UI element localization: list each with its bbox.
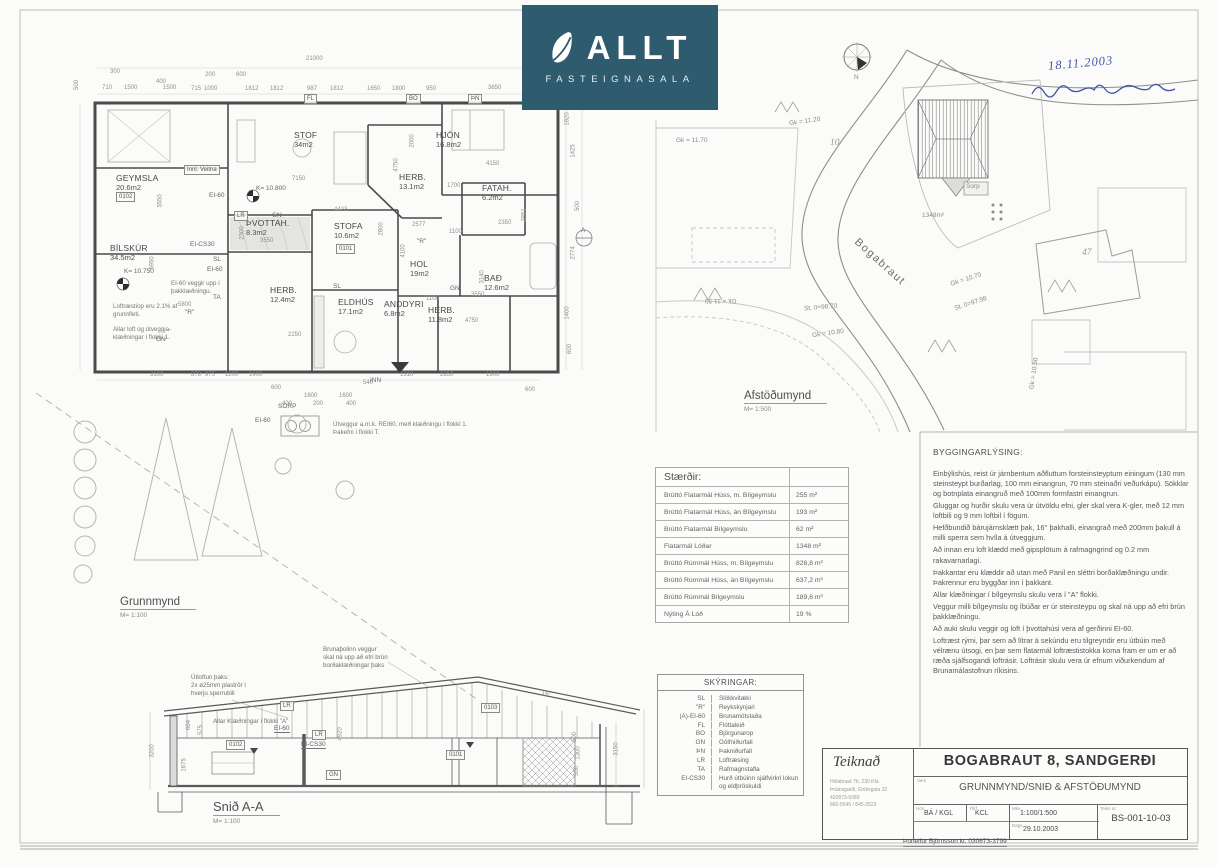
section-cut-marker-icon bbox=[576, 230, 592, 246]
code-label: SL bbox=[213, 256, 221, 263]
legend-meaning: Gólfniðurfall bbox=[712, 739, 803, 747]
section-dimensions: 3200664575167549205001300500315016° bbox=[0, 0, 1218, 867]
dimension-label: 1500 bbox=[163, 85, 176, 91]
code-label: EI-CS30 bbox=[190, 241, 215, 248]
room-label: BÍLSKÚR 34.5m2 bbox=[110, 244, 148, 262]
code-label: INN bbox=[370, 377, 381, 384]
room-label: BAÐ 12.6m2 bbox=[484, 274, 509, 292]
size-table-row: Flatarmál Lóðar 1348 m² bbox=[656, 537, 848, 554]
site-label: N bbox=[854, 74, 859, 81]
house-roof bbox=[918, 100, 988, 178]
boxed-code-label: LR bbox=[234, 211, 248, 221]
description-title: BYGGINGARLÝSING: bbox=[933, 447, 1190, 457]
size-table: Stærðir: Brúttó Flatarmál Húss, m. Bílge… bbox=[655, 467, 849, 623]
boxed-code-label: ÞN bbox=[468, 94, 482, 104]
legend-code: LR bbox=[658, 757, 712, 765]
dimension-label: 1812 bbox=[270, 86, 283, 92]
room-label: HOL 19m2 bbox=[410, 260, 429, 278]
compass-icon bbox=[842, 42, 872, 72]
dimension-label: 2800 bbox=[379, 222, 385, 235]
dimension-label: 5950 bbox=[150, 256, 156, 269]
dimension-label: 3150 bbox=[614, 742, 620, 755]
dimension-label: 600 bbox=[236, 72, 246, 78]
legend-meaning: Loftræsing bbox=[712, 757, 803, 765]
dimension-label: 5800 bbox=[178, 302, 191, 308]
dimension-label: 987 bbox=[307, 86, 317, 92]
plot-number: 10 bbox=[830, 138, 840, 148]
site-label: Gk = 11.20 bbox=[789, 116, 821, 127]
dimension-label: 950 bbox=[426, 86, 436, 92]
size-table-row: Brúttó Rúmmál Húss, án Bílgeymslu 637,2 … bbox=[656, 571, 848, 588]
sheet-title: GRUNNMYND/SNIÐ & AFSTÖÐUMYND bbox=[913, 782, 1187, 793]
leaf-icon bbox=[548, 30, 578, 66]
dimension-label: 3550 bbox=[471, 292, 484, 298]
dimension-label: 2350 bbox=[498, 220, 511, 226]
code-label: GN bbox=[156, 336, 166, 343]
dimension-label: 4750 bbox=[394, 158, 400, 171]
legend-code: EI-CS30 bbox=[658, 775, 712, 791]
address-line: 420873-5089 bbox=[830, 795, 887, 803]
room-label: GEYMSLA 20.6m2 bbox=[116, 174, 159, 192]
code-label: EI-60 bbox=[209, 192, 225, 199]
dimension-label: 400 bbox=[346, 401, 356, 407]
size-table-row: Brúttó Rúmmál Bílgeymslu 189,6 m³ bbox=[656, 588, 848, 605]
legend-code: (A)-EI-60 bbox=[658, 713, 712, 721]
site-plan-labels: Gk = 11.70Gk = 11.20Gk = 11.30St. 0=98.7… bbox=[0, 0, 1218, 867]
boxed-code-label: LR bbox=[280, 701, 294, 711]
dimension-label: 715 bbox=[191, 86, 201, 92]
description-paragraph: Þakkantar eru klæddir að utan með Panil … bbox=[933, 568, 1190, 588]
size-table-row: Nýting Á Lóð 19 % bbox=[656, 605, 848, 622]
scales: 1:100/1:500 bbox=[1020, 810, 1057, 817]
address-line: Þráinsgarði, Eiríksgata 32 bbox=[830, 787, 887, 795]
description-paragraph: Einbýlishús, reist úr járnbentum aðflutt… bbox=[933, 469, 1190, 499]
dimension-label: 500 bbox=[74, 80, 80, 90]
size-table-row: Brúttó Flatarmál Bílgeymslu 62 m² bbox=[656, 520, 848, 537]
legend-code: "R" bbox=[658, 704, 712, 712]
floor-plan-chips: Innl. VeitnaLR01020101FLBOÞN bbox=[0, 0, 1218, 867]
dimension-label: 1600 bbox=[304, 393, 317, 399]
dimension-label: 200 bbox=[313, 401, 323, 407]
room-label: STOF 34m2 bbox=[294, 131, 317, 149]
dimension-label: 400 bbox=[282, 401, 292, 407]
code-label: TA bbox=[213, 294, 221, 301]
size-table-rows: Brúttó Flatarmál Húss, m. Bílgeymslu 255… bbox=[656, 486, 848, 622]
dimension-label: 1500 bbox=[124, 85, 137, 91]
code-label: K= 10.800 bbox=[256, 185, 286, 192]
dimension-label: 600 bbox=[567, 344, 573, 354]
boxed-code-label: GN bbox=[326, 770, 341, 780]
code-label: A bbox=[581, 227, 585, 234]
plot-number: 47 bbox=[1082, 248, 1092, 258]
dimension-label: 1000 bbox=[204, 86, 217, 92]
dimension-label: 1400 bbox=[565, 306, 571, 319]
floor-plan-dimensions: 2100030040020060071015001500715100018121… bbox=[0, 0, 1218, 867]
floor-plan-notes: EI-60 veggir upp í þakklæðningu.Loftræst… bbox=[0, 0, 1218, 867]
size-table-row: Brúttó Rúmmál Húss, m. Bílgeymslu 826,8 … bbox=[656, 554, 848, 571]
dimension-label: 3100 bbox=[150, 372, 163, 378]
section-underlined-codes: EI-60EI-CS30 bbox=[0, 0, 1218, 867]
dimension-label: 21000 bbox=[306, 56, 323, 62]
room-label: ELDHÚS 17.1m2 bbox=[338, 298, 374, 316]
dimension-label: 1310 bbox=[400, 372, 413, 378]
drawing-no-label: Teikn nr. bbox=[1100, 806, 1117, 811]
site-label: 1348m² bbox=[922, 212, 944, 219]
dimension-label: 540 bbox=[363, 380, 373, 386]
legend-code: GN bbox=[658, 739, 712, 747]
dimension-label: 1700 bbox=[447, 183, 460, 189]
legend-rows: SL Slökkvitæki "R" Reykskynjari (A)-EI-6… bbox=[658, 691, 803, 795]
legend-code: BO bbox=[658, 730, 712, 738]
legend-code: ÞN bbox=[658, 748, 712, 756]
handwritten-date: 18.11.2003 bbox=[1047, 53, 1113, 74]
floor-plan-codes: EI-60K= 10.800K= 10.750EI-CS30SLEI-60TA"… bbox=[0, 0, 1218, 867]
site-label: Sorp bbox=[966, 183, 980, 190]
legend-code: FL bbox=[658, 722, 712, 730]
logo-subtitle: FASTEIGNASALA bbox=[522, 74, 718, 85]
room-label: HERB. 13.1m2 bbox=[399, 173, 426, 191]
code-label: SORP bbox=[278, 403, 296, 410]
dimension-label: 1900 bbox=[486, 372, 499, 378]
boxed-code-label: BO bbox=[406, 94, 421, 104]
building-description: BYGGINGARLÝSING: Einbýlishús, reist úr j… bbox=[933, 447, 1190, 678]
room-label: FATAH. 6.2m2 bbox=[482, 184, 512, 202]
dimension-label: 1300 bbox=[576, 746, 582, 759]
dags-label: Dags. bbox=[1012, 823, 1024, 828]
logo-brand: ALLT bbox=[587, 29, 693, 67]
code-label: EI-60 bbox=[255, 417, 271, 424]
room-label: ÞVOTTAH. 8.3m2 bbox=[246, 219, 289, 237]
boxed-code-label: LR bbox=[312, 730, 326, 740]
dimension-label: 3140 bbox=[480, 270, 486, 283]
dimension-label: 1820 bbox=[565, 112, 571, 125]
dimension-label: 2250 bbox=[288, 332, 301, 338]
dimension-label: 400 bbox=[156, 79, 166, 85]
dimension-label: 300 bbox=[110, 69, 120, 75]
legend-meaning: Björgunarop bbox=[712, 730, 803, 738]
boxed-code-label: 0102 bbox=[226, 740, 245, 750]
floor-plan-title: Grunnmynd bbox=[120, 596, 196, 610]
dimension-label: 3550 bbox=[260, 238, 273, 244]
site-signature bbox=[1032, 84, 1175, 97]
plan-note: Allar loft og útveggja- klæðningar í flo… bbox=[113, 326, 171, 342]
dimension-label: 4100 bbox=[401, 244, 407, 257]
date: 29.10.2003 bbox=[1023, 826, 1058, 833]
site-label: St. 0=97.98 bbox=[954, 295, 988, 312]
dimension-label: 1900 bbox=[249, 372, 262, 378]
level-marker-icon bbox=[117, 190, 259, 290]
description-paragraph: Loftræst rými, þar sem að lítrar á sekún… bbox=[933, 636, 1190, 676]
boxed-code-label: 0102 bbox=[116, 192, 135, 202]
legend-meaning: Flóttaleið bbox=[712, 722, 803, 730]
floor-plan-linework bbox=[80, 68, 592, 436]
section-title-group: Snið A-A M= 1:100 bbox=[213, 798, 280, 825]
logo: ALLT FASTEIGNASALA bbox=[522, 5, 718, 110]
dimension-label: 1812 bbox=[245, 86, 258, 92]
site-label: Gk = 10.70 bbox=[950, 271, 983, 288]
drawing-number: BS-001-10-03 bbox=[1097, 813, 1185, 824]
dimension-label: 600 bbox=[271, 385, 281, 391]
room-label: ANDDYRI 6.8m2 bbox=[384, 300, 424, 318]
dimension-label: 1812 bbox=[330, 86, 343, 92]
plan-note: Loftræstiop eru 2.1% af grunnfleti. bbox=[113, 303, 177, 319]
description-paragraph: Að innan eru loft klædd með gipsplötum á… bbox=[933, 545, 1190, 565]
boxed-code-label: Innl. Veitna bbox=[184, 165, 220, 175]
site-plot-numbers: 1047 bbox=[0, 0, 1218, 867]
dimension-label: 2300 bbox=[240, 226, 246, 239]
code-label: "R" bbox=[417, 238, 426, 245]
room-label: HJÓN 16.8m2 bbox=[436, 131, 461, 149]
site-label: St. 0=98.70 bbox=[804, 303, 838, 313]
dimension-label: 1800 bbox=[392, 86, 405, 92]
site-plan-linework bbox=[656, 42, 1198, 432]
dimension-label: 2851 bbox=[522, 208, 528, 221]
description-paragraphs: Einbýlishús, reist úr járnbentum aðflutt… bbox=[933, 469, 1190, 676]
architect-address: Hólabraut 7b, 230 KfaÞráinsgarði, Eiríks… bbox=[830, 779, 887, 810]
landscape-linework bbox=[36, 393, 478, 700]
dimension-label: 878 bbox=[191, 372, 201, 378]
checked-by: KCL bbox=[975, 810, 989, 817]
dimension-label: 2000 bbox=[410, 134, 416, 147]
project-title: BOGABRAUT 8, SANDGERÐI bbox=[913, 753, 1187, 769]
dimension-label: 2774 bbox=[571, 246, 577, 259]
code-label: EI-60 bbox=[274, 725, 290, 733]
code-label: EI-60 bbox=[207, 266, 223, 273]
legend-meaning: Hurð útbúinn sjálfvirkri lokun og eldþrö… bbox=[712, 775, 803, 791]
dimension-label: 7150 bbox=[292, 176, 305, 182]
section-note: Allar Klæðningar í flokki "A" bbox=[213, 718, 288, 726]
legend-meaning: Rafmagnstafla bbox=[712, 766, 803, 774]
site-label: Gk = 10.50 bbox=[1028, 357, 1039, 390]
legend-box: SKÝRINGAR: SL Slökkvitæki "R" Reykskynja… bbox=[657, 674, 804, 796]
dimension-label: 575 bbox=[198, 725, 204, 735]
address-line: Hólabraut 7b, 230 Kfa bbox=[830, 779, 887, 787]
site-plan-title-group: Afstöðumynd M= 1:500 bbox=[744, 386, 827, 413]
dimension-label: 1425 bbox=[571, 144, 577, 157]
legend-meaning: Þakniðurfall bbox=[712, 748, 803, 756]
dimension-label: 1200 bbox=[225, 372, 238, 378]
title-block: Teiknað Hólabraut 7b, 230 KfaÞráinsgarði… bbox=[822, 748, 1188, 840]
sheet-frame bbox=[20, 10, 1198, 849]
code-label: K= 10.750 bbox=[124, 268, 154, 275]
dimension-label: 1100 bbox=[449, 229, 462, 235]
legend-meaning: Reykskynjari bbox=[712, 704, 803, 712]
floor-plan-title-group: Grunnmynd M= 1:100 bbox=[120, 592, 196, 619]
legend-meaning: Brunamótstaða bbox=[712, 713, 803, 721]
legend-title: SKÝRINGAR: bbox=[658, 675, 803, 691]
dimension-label: 1675 bbox=[182, 758, 188, 771]
drawn-label: Teiknað bbox=[833, 754, 880, 771]
dimension-label: 3550 bbox=[158, 194, 164, 207]
section-scale: M= 1:100 bbox=[213, 818, 280, 825]
boxed-code-label: FL bbox=[304, 94, 317, 104]
section-title: Snið A-A bbox=[213, 799, 280, 816]
legend-code: TA bbox=[658, 766, 712, 774]
pine-tree-icon bbox=[134, 418, 262, 560]
plan-note: EI-60 veggir upp í þakklæðningu. bbox=[171, 280, 220, 296]
dimension-label: 3200 bbox=[150, 744, 156, 757]
code-label: "R" bbox=[185, 309, 194, 316]
dimension-label: 664 bbox=[186, 720, 192, 730]
dimension-label: 975 bbox=[205, 372, 215, 378]
site-label: Gk = 11.30 bbox=[705, 297, 737, 304]
dimension-label: 3650 bbox=[488, 85, 501, 91]
dimension-label: 500 bbox=[572, 732, 578, 742]
boxed-code-label: 0101 bbox=[336, 244, 355, 254]
dimension-label: 500 bbox=[574, 766, 580, 776]
certifier-name: Þorleifur Björnsson kt. 030673-3799 bbox=[903, 838, 1007, 847]
dimension-label: 4150 bbox=[486, 161, 499, 167]
size-table-header: Stærðir: bbox=[656, 468, 848, 486]
code-label: GN bbox=[450, 285, 460, 292]
dimension-label: 4920 bbox=[338, 727, 344, 740]
legend-code: SL bbox=[658, 695, 712, 703]
dimension-label: 4750 bbox=[465, 318, 478, 324]
legend-meaning: Slökkvitæki bbox=[712, 695, 803, 703]
dimension-label: 710 bbox=[102, 85, 112, 91]
street-name: Bogabraut bbox=[852, 236, 908, 288]
drawn-by: BÁ / KGL bbox=[924, 810, 953, 817]
dimension-label: 2850 bbox=[440, 372, 453, 378]
dimension-label: 1100 bbox=[426, 296, 439, 302]
description-paragraph: Allar klæðningar í bílgeymslu skulu vera… bbox=[933, 590, 1190, 600]
tree-icon bbox=[74, 415, 354, 583]
description-paragraph: Gluggar og hurðir skulu vera úr útvöldu … bbox=[933, 501, 1190, 521]
section-note: Brunaþolinn veggur skal ná upp að efri b… bbox=[323, 646, 388, 670]
site-label: Gk = 10.80 bbox=[812, 328, 845, 339]
site-plan-scale: M= 1:500 bbox=[744, 406, 827, 413]
room-label: STOFA 10.6m2 bbox=[334, 222, 363, 240]
drawing-linework bbox=[0, 0, 1218, 867]
boxed-code-label: 0101 bbox=[446, 750, 465, 760]
room-label: HERB. 11.8m2 bbox=[428, 306, 455, 324]
dimension-label: 1650 bbox=[367, 86, 380, 92]
entrance-arrow-icon bbox=[391, 362, 409, 373]
site-label: Gk = 11.70 bbox=[676, 137, 708, 144]
drawing-sheet: ALLT FASTEIGNASALA 18.11.2003 GEYMSLA 20… bbox=[0, 0, 1218, 867]
size-table-row: Brúttó Flatarmál Húss, m. Bílgeymslu 255… bbox=[656, 486, 848, 503]
size-table-row: Brúttó Flatarmál Húss, án Bílgeymslu 193… bbox=[656, 503, 848, 520]
dimension-label: 2577 bbox=[412, 222, 425, 228]
plan-note: Útveggur a.m.k. REI60, með klæðningu í f… bbox=[333, 421, 467, 437]
site-plan-title: Afstöðumynd bbox=[744, 390, 827, 404]
floor-plan-room-labels: GEYMSLA 20.6m2 BÍLSKÚR 34.5m2 STOF 34m2 … bbox=[0, 0, 1218, 867]
address-line: 860-5545 / 845-3523 bbox=[830, 802, 887, 810]
description-paragraph: Veggur milli bílgeymslu og íbúðar er úr … bbox=[933, 602, 1190, 622]
dimension-label: 16° bbox=[542, 692, 551, 698]
description-paragraph: Hefðbundið bárujárnsklætt þak, 16° þakha… bbox=[933, 523, 1190, 543]
size-table-title: Stærðir: bbox=[656, 471, 789, 483]
section-notes: Útloftun þaks: 2x ø25mm plaströr í hverj… bbox=[0, 0, 1218, 867]
code-label: EI-CS30 bbox=[301, 741, 326, 749]
room-label: HERB. 12.4m2 bbox=[270, 286, 297, 304]
description-paragraph: Að auki skulu veggir og loft í þvottahús… bbox=[933, 624, 1190, 634]
dimension-label: 200 bbox=[205, 72, 215, 78]
section-note: Útloftun þaks: 2x ø25mm plaströr í hverj… bbox=[191, 674, 246, 698]
dimension-label: 1600 bbox=[339, 393, 352, 399]
code-label: SL bbox=[333, 283, 341, 290]
section-chips: LRLRGN010201010103 bbox=[0, 0, 1218, 867]
boxed-code-label: 0103 bbox=[481, 703, 500, 713]
dimension-label: 4423 bbox=[334, 207, 347, 213]
dimension-label: 500 bbox=[575, 201, 581, 211]
floor-plan-scale: M= 1:100 bbox=[120, 612, 196, 619]
dimension-label: 600 bbox=[525, 387, 535, 393]
code-label: GN bbox=[272, 212, 282, 219]
